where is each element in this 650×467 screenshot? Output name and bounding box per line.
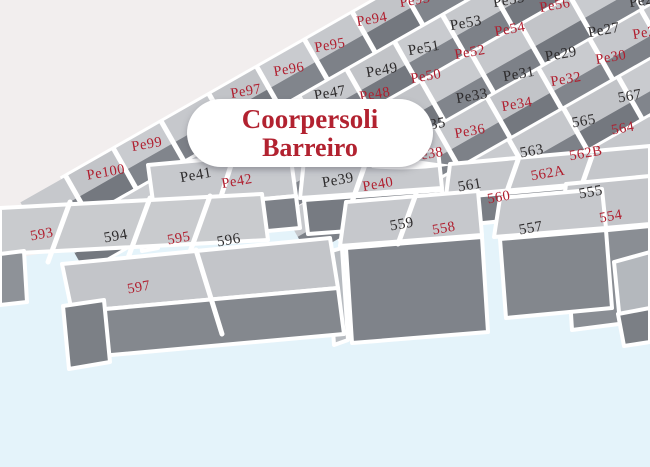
callout-line2: Barreiro <box>262 134 358 161</box>
callout-line1: Coorpersoli <box>242 105 378 133</box>
callout-tail <box>0 0 650 467</box>
callout-bubble[interactable]: Coorpersoli Barreiro <box>187 99 433 167</box>
port-map: Pe93Pe94Pe95Pe96Pe97Pe99Pe100Pe55Pe53Pe5… <box>0 0 650 467</box>
